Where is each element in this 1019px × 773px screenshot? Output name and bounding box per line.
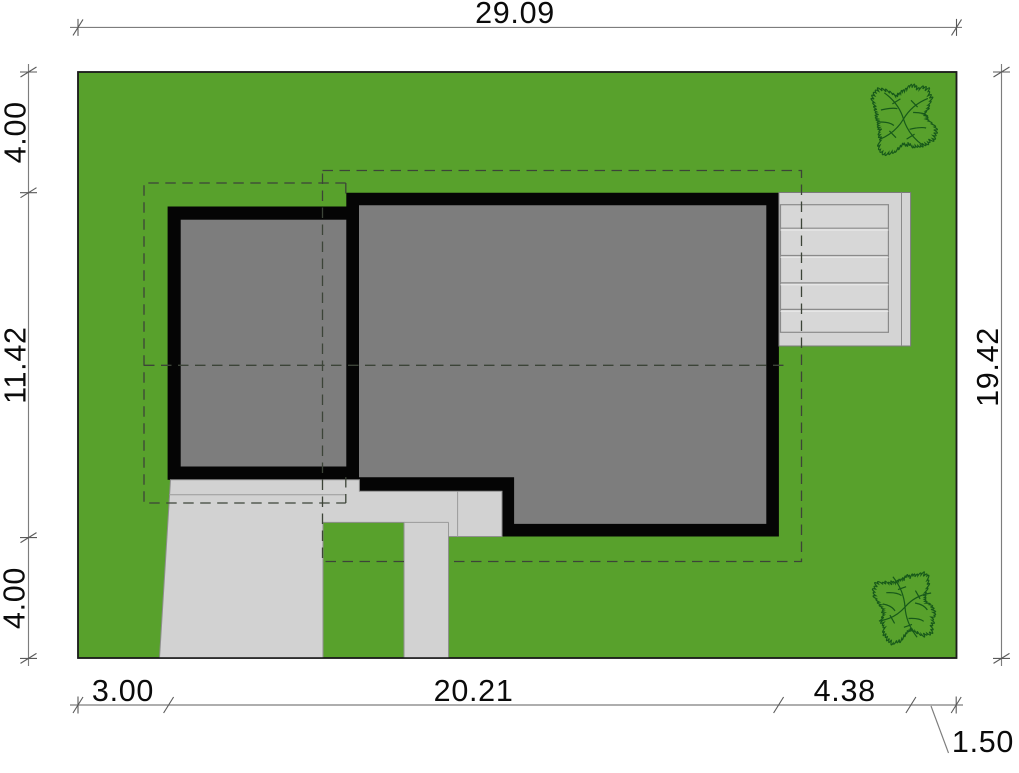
svg-text:3.00: 3.00	[92, 674, 154, 708]
svg-text:4.38: 4.38	[814, 674, 876, 708]
svg-text:1.50: 1.50	[952, 725, 1014, 759]
svg-text:11.42: 11.42	[0, 326, 33, 404]
svg-text:19.42: 19.42	[971, 327, 1005, 407]
svg-text:29.09: 29.09	[475, 0, 555, 30]
svg-text:4.00: 4.00	[0, 567, 32, 629]
svg-text:4.00: 4.00	[0, 101, 33, 163]
svg-text:20.21: 20.21	[434, 674, 514, 708]
